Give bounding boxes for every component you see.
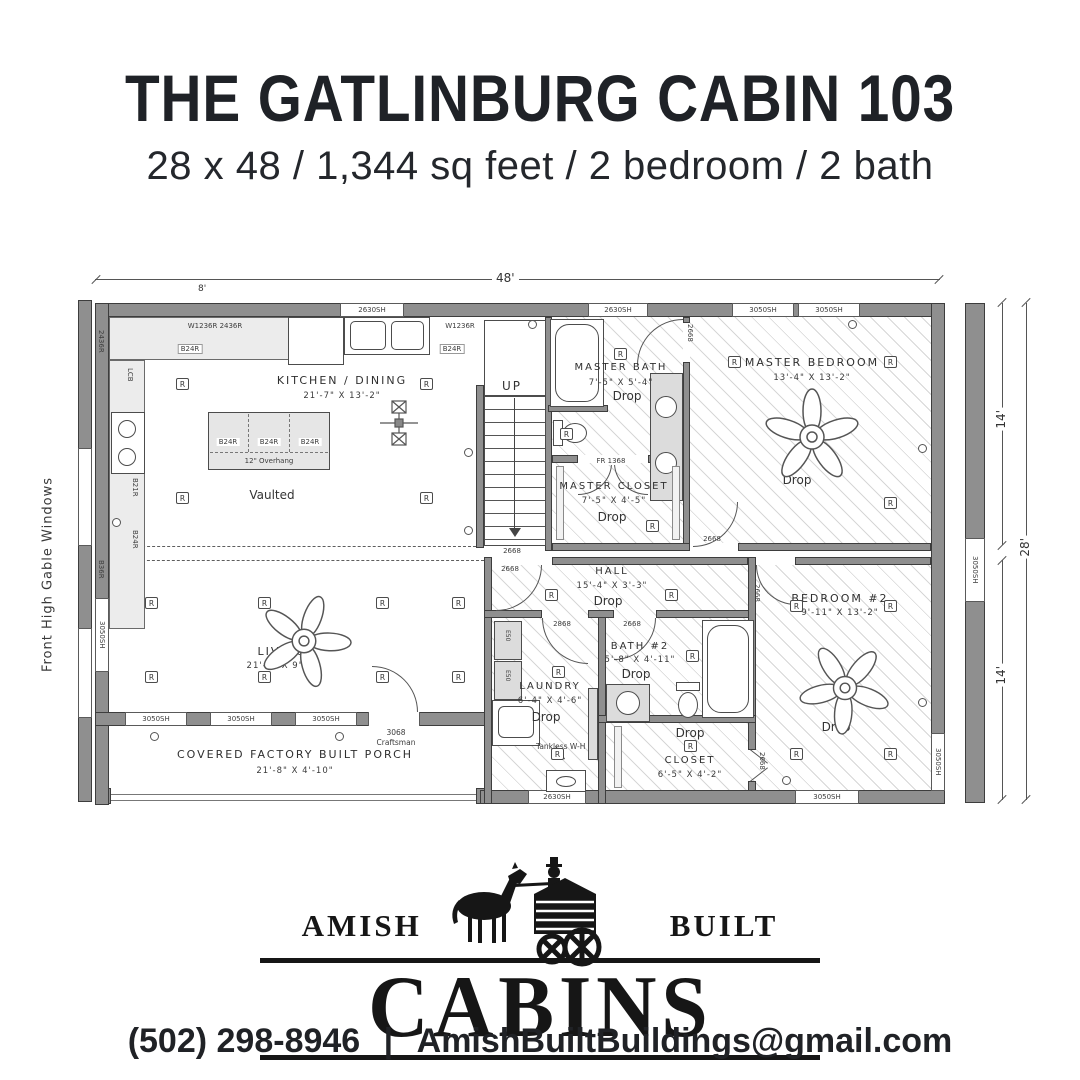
window-label: 3050SH bbox=[971, 556, 979, 584]
recessed-light-symbol: R bbox=[552, 666, 565, 678]
recessed-light-symbol: R bbox=[884, 600, 897, 612]
wall-hall-bottom-c bbox=[656, 610, 750, 618]
recessed-light-symbol: R bbox=[551, 748, 564, 760]
room-dims-bedroom2: 9'-11" X 13'-2" bbox=[801, 608, 878, 618]
closet-rod bbox=[556, 466, 564, 540]
dimension-label-48: 48' bbox=[492, 271, 519, 285]
recessed-light-symbol: R bbox=[545, 589, 558, 601]
dimension-label-14-lower: 14' bbox=[994, 664, 1008, 687]
dimension-label-28: 28' bbox=[1018, 536, 1032, 559]
window: 2630SH bbox=[528, 790, 586, 804]
island-cabinet-label: B24R bbox=[258, 438, 281, 446]
island-divider bbox=[289, 414, 290, 452]
porch-edge-line bbox=[95, 800, 492, 801]
wall-outer-right bbox=[931, 303, 945, 804]
recessed-light-symbol: R bbox=[790, 600, 803, 612]
wall-light-symbol bbox=[464, 526, 473, 535]
wall-hall-bottom-b bbox=[588, 610, 614, 618]
island-divider bbox=[248, 414, 249, 452]
window-gable bbox=[78, 628, 92, 718]
recessed-light-symbol: R bbox=[884, 356, 897, 368]
porch-edge-line bbox=[95, 794, 492, 795]
room-name-master-bedroom: MASTER BEDROOM bbox=[745, 356, 879, 369]
recessed-light-symbol: R bbox=[420, 492, 433, 504]
closet2-rod bbox=[614, 726, 622, 788]
door-label: 2668 bbox=[753, 584, 761, 602]
window-label: 3050SH bbox=[813, 793, 841, 801]
kitchen-left-cabinets bbox=[109, 360, 145, 629]
room-name-master-closet: MASTER CLOSET bbox=[559, 481, 668, 492]
island-overhang-line bbox=[210, 452, 328, 453]
window-label: 2630SH bbox=[543, 793, 571, 801]
module-split-line bbox=[112, 560, 484, 561]
dimension-label-8: 8' bbox=[196, 284, 208, 294]
wall-light-symbol bbox=[918, 698, 927, 707]
wall-hall-bottom-a bbox=[484, 610, 542, 618]
room-name-bath2: BATH #2 bbox=[611, 641, 669, 652]
room-note-master-bath: Drop bbox=[613, 389, 642, 403]
room-dims-laundry: 6'-4" X 4'-6" bbox=[518, 696, 583, 706]
window: 3050SH bbox=[795, 790, 859, 804]
washer-label: E50 bbox=[504, 630, 511, 641]
contact-phone: (502) 298-8946 bbox=[128, 1022, 361, 1060]
cabinet-label: B21R bbox=[131, 478, 139, 497]
bath2-toilet-bowl bbox=[678, 692, 698, 718]
window-label: 3050SH bbox=[98, 621, 106, 649]
window: 3050SH bbox=[965, 538, 985, 602]
burner bbox=[118, 420, 136, 438]
room-dims-master-closet: 7'-5" X 4'-5" bbox=[582, 496, 647, 506]
dimension-label-14-upper: 14' bbox=[994, 408, 1008, 431]
wall-light-symbol bbox=[918, 444, 927, 453]
recessed-light-symbol: R bbox=[452, 671, 465, 683]
bath2-tub-basin bbox=[707, 625, 749, 713]
recessed-light-symbol: R bbox=[560, 428, 573, 440]
recessed-light-symbol: R bbox=[884, 497, 897, 509]
recessed-light-symbol: R bbox=[145, 671, 158, 683]
room-name-hall: HALL bbox=[595, 566, 629, 577]
room-name-porch: COVERED FACTORY BUILT PORCH bbox=[177, 748, 413, 761]
room-note-master-closet: Drop bbox=[598, 510, 627, 524]
door-label: 2668 bbox=[623, 620, 641, 628]
window-label: 3050SH bbox=[312, 715, 340, 723]
ceiling-fan-master bbox=[762, 387, 862, 487]
cabinet-label: LCB bbox=[126, 368, 134, 382]
room-dims-kitchen: 21'-7" X 13'-2" bbox=[303, 391, 380, 401]
recessed-light-symbol: R bbox=[884, 748, 897, 760]
window: 3050SH bbox=[931, 733, 945, 791]
cabinet-label: W1236R 2436R bbox=[188, 322, 243, 330]
wall-outer-left bbox=[95, 303, 109, 805]
window: 3050SH bbox=[732, 303, 794, 317]
wall-marriage-lower-e bbox=[795, 557, 931, 565]
island-overhang-label: 12" Overhang bbox=[245, 457, 294, 465]
door-label: 2668 bbox=[503, 547, 521, 555]
sink-bowl bbox=[391, 321, 424, 350]
room-note-bath2: Drop bbox=[622, 667, 651, 681]
closet-rod bbox=[672, 466, 680, 540]
recessed-light-symbol: R bbox=[145, 597, 158, 609]
wall-light-symbol bbox=[464, 448, 473, 457]
recessed-light-symbol: R bbox=[646, 520, 659, 532]
wall-light-symbol bbox=[782, 776, 791, 785]
door-label: FR 1368 bbox=[595, 457, 628, 465]
burner bbox=[118, 448, 136, 466]
recessed-light-symbol: R bbox=[728, 356, 741, 368]
wall-bath-east-b bbox=[683, 362, 690, 551]
door-label: 2868 bbox=[553, 620, 571, 628]
recessed-light-symbol: R bbox=[176, 378, 189, 390]
wall-bath-east-a bbox=[683, 317, 690, 323]
side-note: Front High Gable Windows bbox=[41, 440, 56, 710]
door-label: 2668 bbox=[686, 324, 694, 342]
room-dims-porch: 21'-8" X 4'-10" bbox=[256, 766, 333, 776]
refrigerator bbox=[288, 317, 344, 365]
utility-counter bbox=[588, 688, 598, 760]
wall-closet-right-a bbox=[748, 722, 756, 750]
island-cabinet-label: B24R bbox=[299, 438, 322, 446]
recessed-light-symbol: R bbox=[614, 348, 627, 360]
window: 3050SH bbox=[125, 712, 187, 726]
ceiling-fan-bedroom2 bbox=[797, 640, 893, 736]
room-dims-master-bath: 7'-5" X 5'-4" bbox=[589, 378, 654, 388]
room-name-kitchen: KITCHEN / DINING bbox=[277, 374, 407, 387]
cabinet-label: 2436R bbox=[97, 330, 105, 353]
cabinet-label: B24R bbox=[440, 344, 465, 354]
tankless-water-heater-inner bbox=[556, 776, 576, 787]
cabinet-label: W1236R bbox=[445, 322, 475, 330]
room-name-laundry: LAUNDRY bbox=[519, 681, 581, 692]
window-label: 3050SH bbox=[815, 306, 843, 314]
window-gable bbox=[78, 448, 92, 546]
ceiling-fan-living bbox=[255, 592, 353, 690]
contact-separator: | bbox=[384, 1022, 394, 1060]
room-name-bedroom2: BEDROOM #2 bbox=[791, 592, 888, 605]
wall-light-symbol bbox=[528, 320, 537, 329]
room-dims-hall: 15'-4" X 3'-3" bbox=[577, 581, 648, 591]
room-note-hall: Drop bbox=[594, 594, 623, 608]
washer: E50 bbox=[494, 621, 522, 660]
vanity-sink bbox=[655, 396, 677, 418]
window-label: 2630SH bbox=[358, 306, 386, 314]
recessed-light-symbol: R bbox=[452, 597, 465, 609]
room-name-closet2: CLOSET bbox=[665, 755, 716, 766]
wall-stair-left bbox=[476, 385, 484, 548]
stair-arrow bbox=[509, 528, 521, 537]
dryer-label: E50 bbox=[504, 670, 511, 681]
wall-marriage-lower-w bbox=[552, 557, 748, 565]
laundry-sink-basin bbox=[498, 706, 534, 738]
room-note-closet2: Drop bbox=[676, 726, 705, 740]
wall-light-symbol bbox=[848, 320, 857, 329]
recessed-light-symbol: R bbox=[684, 740, 697, 752]
cabinet-label: B36R bbox=[97, 560, 105, 579]
wall-bath-closet-a bbox=[552, 455, 578, 463]
window: 2630SH bbox=[588, 303, 648, 317]
recessed-light-symbol: R bbox=[376, 597, 389, 609]
door-label: 2668 bbox=[758, 752, 766, 770]
room-dims-master-bedroom: 13'-4" X 13'-2" bbox=[773, 373, 850, 383]
front-door-sublabel: Craftsman bbox=[377, 738, 416, 747]
recessed-light-symbol: R bbox=[665, 589, 678, 601]
sink-bowl bbox=[350, 321, 386, 350]
window-label: 2630SH bbox=[604, 306, 632, 314]
recessed-light-symbol: R bbox=[686, 650, 699, 662]
stair-center-line bbox=[514, 398, 515, 530]
wall-marriage-upper-w bbox=[552, 543, 690, 551]
window: 2630SH bbox=[340, 303, 404, 317]
recessed-light-symbol: R bbox=[376, 671, 389, 683]
wall-laundry-right bbox=[598, 615, 606, 804]
recessed-light-symbol: R bbox=[176, 492, 189, 504]
recessed-light-symbol: R bbox=[420, 378, 433, 390]
cabinet-label: B24R bbox=[178, 344, 203, 354]
horse-and-wagon-icon bbox=[436, 852, 656, 970]
recessed-light-symbol: R bbox=[790, 748, 803, 760]
wall-closet-right-b bbox=[748, 781, 756, 791]
wall-light-symbol bbox=[335, 732, 344, 741]
module-split-line bbox=[112, 546, 476, 547]
room-dims-bath2: 5'-8" X 4'-11" bbox=[605, 655, 676, 665]
window: 3050SH bbox=[295, 712, 357, 726]
bath2-toilet-tank bbox=[676, 682, 700, 691]
window-label: 3050SH bbox=[142, 715, 170, 723]
room-note-kitchen: Vaulted bbox=[249, 488, 294, 502]
room-note-laundry: Drop bbox=[532, 710, 561, 724]
window: 3050SH bbox=[798, 303, 860, 317]
dryer: E50 bbox=[494, 661, 522, 700]
logo-top-row: AMISH bbox=[302, 852, 779, 970]
window: 3050SH bbox=[210, 712, 272, 726]
staircase bbox=[484, 396, 546, 546]
wall-living-right bbox=[484, 557, 492, 804]
contact-line: (502) 298-8946 | AmishBuiltBuildings@gma… bbox=[0, 1022, 1080, 1061]
front-door-label: 3068 bbox=[386, 728, 405, 737]
ceiling-fan-kitchen bbox=[376, 400, 422, 446]
room-dims-closet2: 6'-5" X 4'-2" bbox=[658, 770, 723, 780]
room-name-master-bath: MASTER BATH bbox=[575, 362, 668, 373]
door-label: 2668 bbox=[703, 535, 721, 543]
window-label: 3050SH bbox=[227, 715, 255, 723]
wall-marriage-upper-e bbox=[738, 543, 931, 551]
bath2-sink bbox=[616, 691, 640, 715]
door-label: 2668 bbox=[501, 565, 519, 573]
window: 3050SH bbox=[95, 598, 109, 672]
front-door-opening bbox=[368, 712, 420, 726]
stairs-up-label: UP bbox=[499, 379, 525, 393]
wall-light-symbol bbox=[112, 518, 121, 527]
window-label: 3050SH bbox=[749, 306, 777, 314]
island-cabinet-label: B24R bbox=[217, 438, 240, 446]
wall-light-symbol bbox=[150, 732, 159, 741]
contact-email: AmishBuiltBuildings@gmail.com bbox=[417, 1022, 953, 1060]
window-label: 3050SH bbox=[934, 748, 942, 776]
cabinet-label: B24R bbox=[131, 530, 139, 549]
wall-gable-left bbox=[78, 300, 92, 802]
